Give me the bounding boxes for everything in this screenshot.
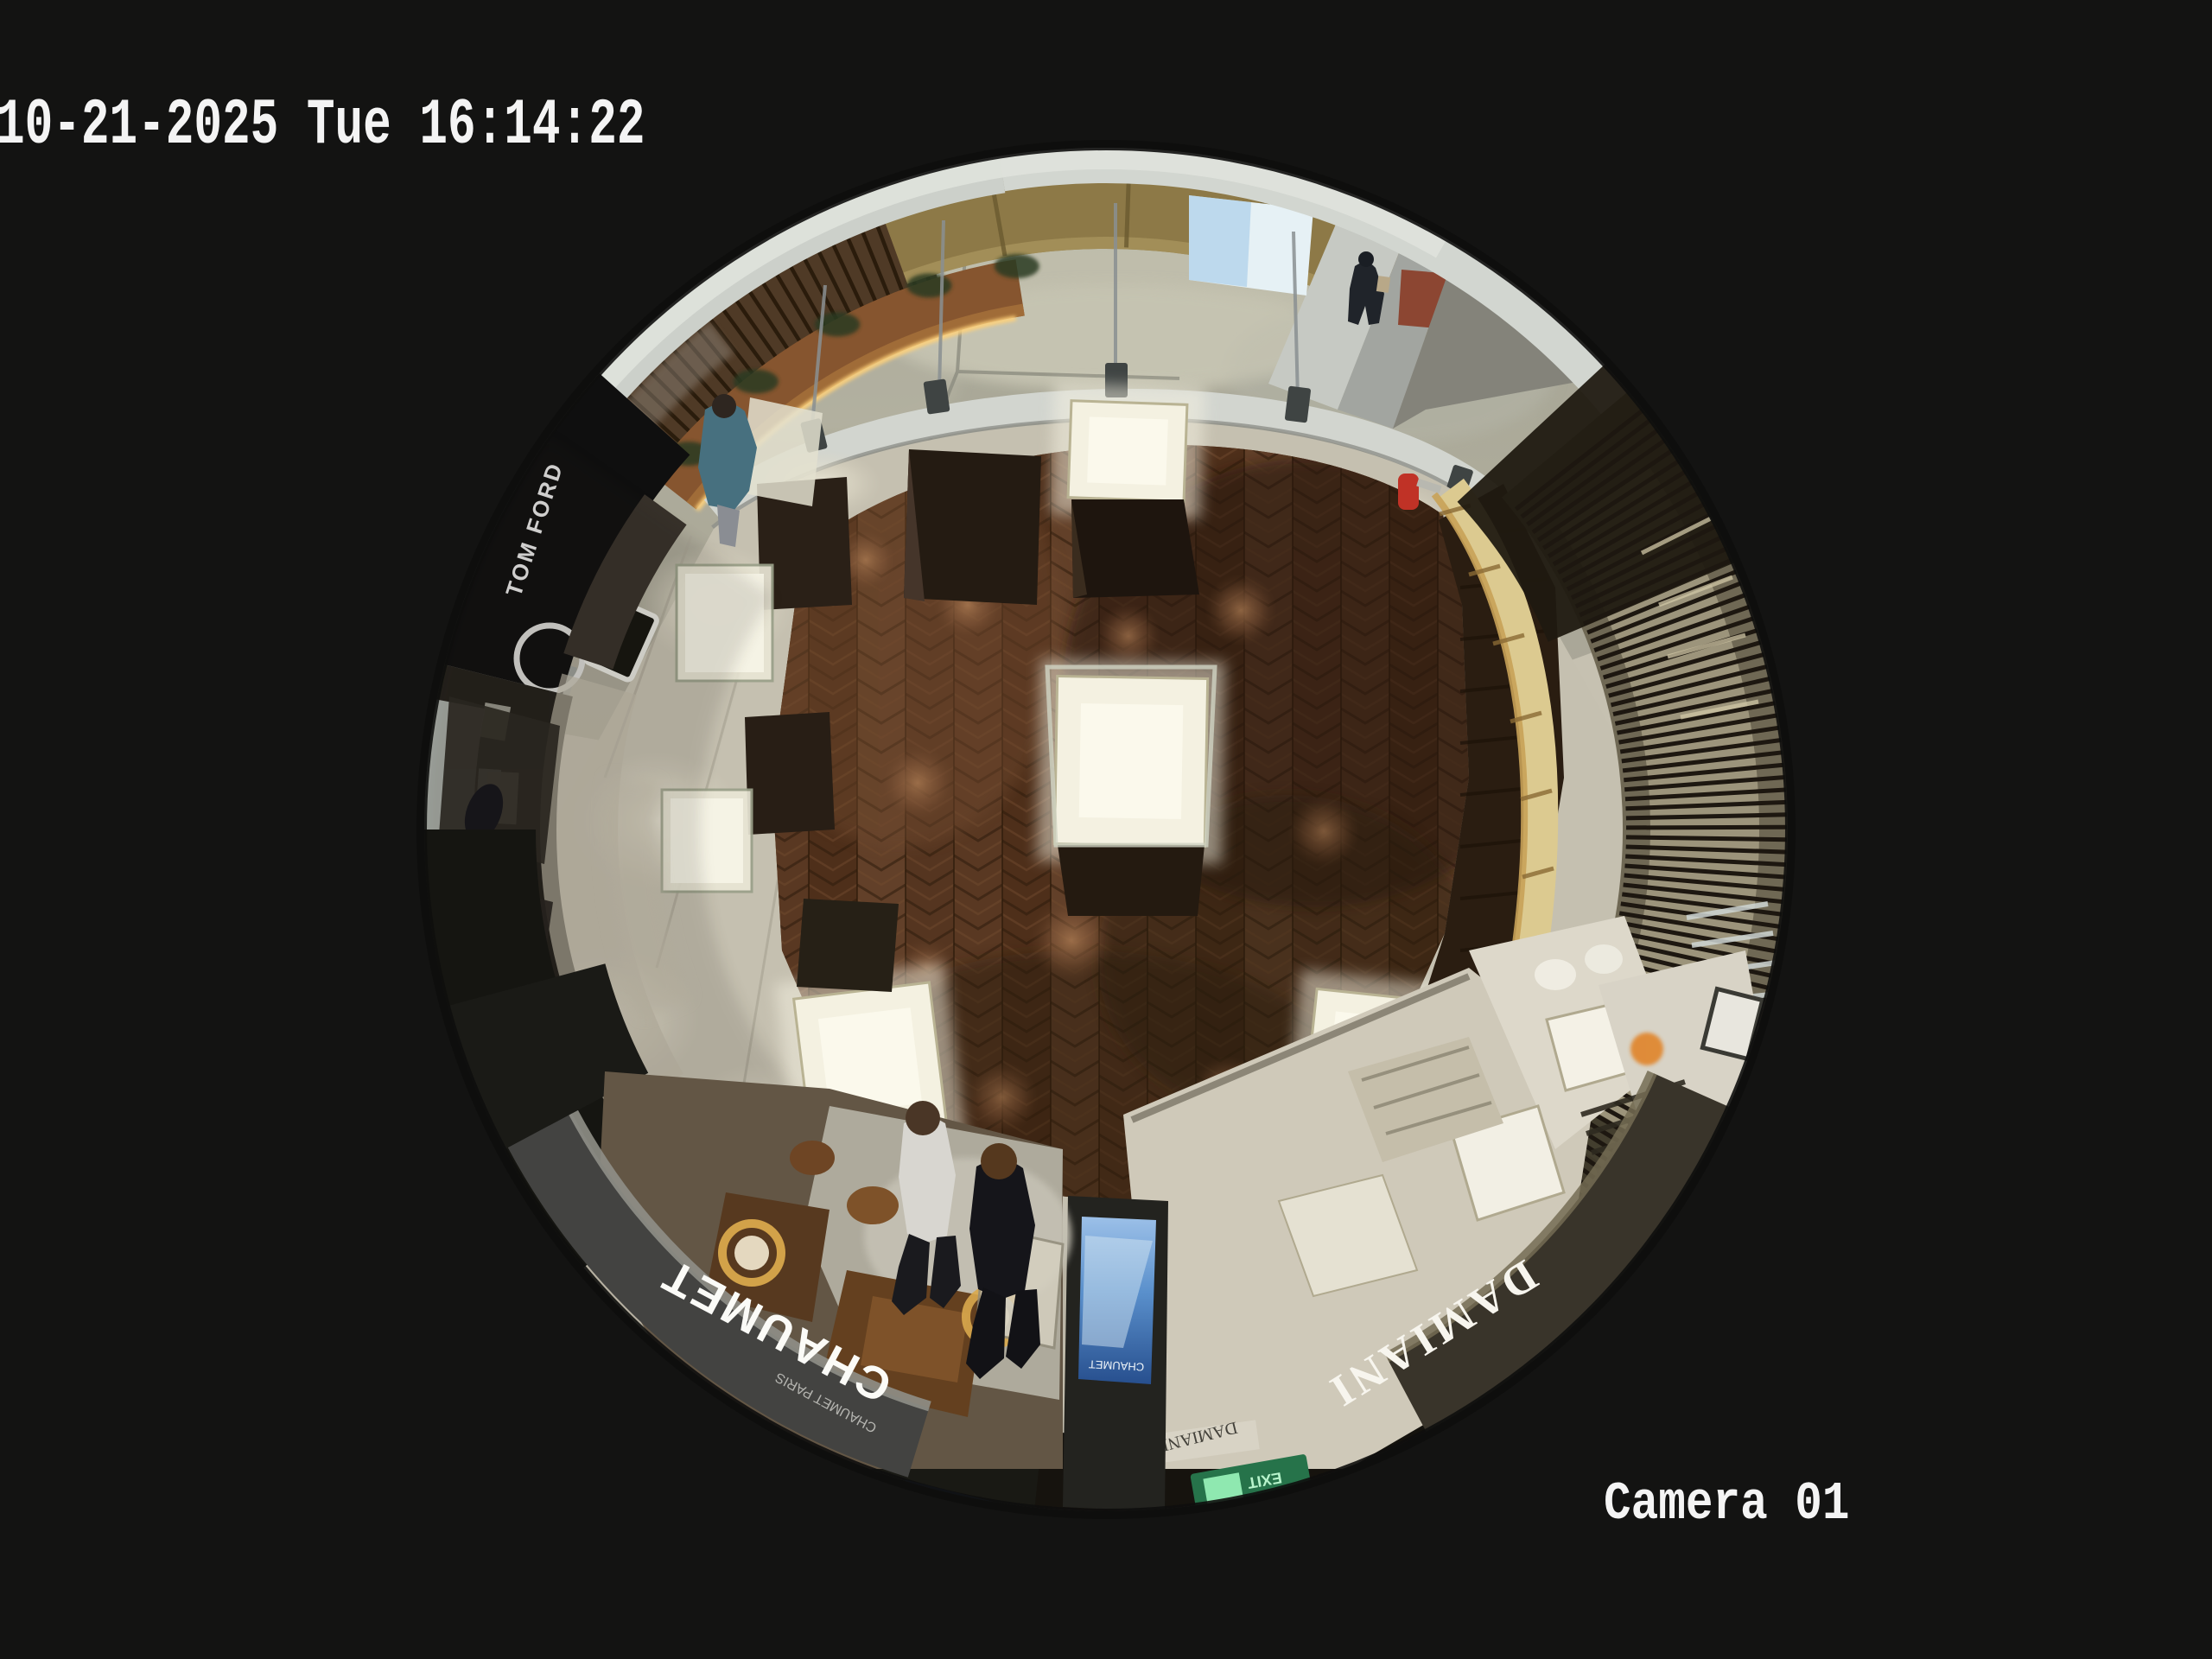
svg-text:Camera 01: Camera 01 (1604, 1474, 1850, 1535)
svg-text:10-21-2025 Tue 16:14:22: 10-21-2025 Tue 16:14:22 (0, 88, 645, 162)
